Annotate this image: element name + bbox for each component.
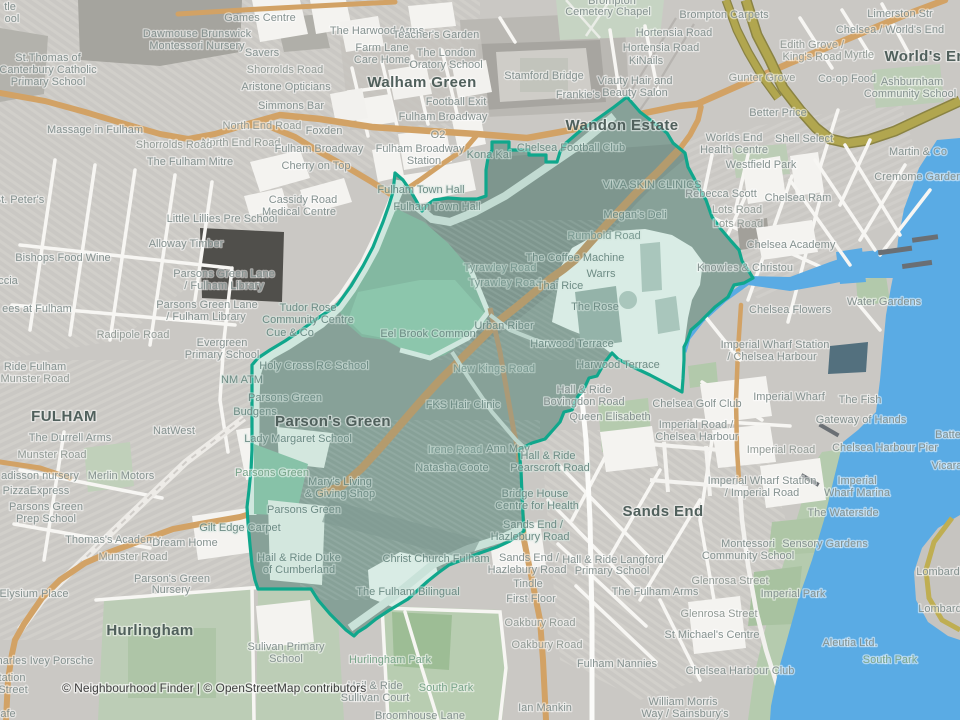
svg-text:Wharf Marina: Wharf Marina bbox=[824, 487, 891, 499]
svg-text:Bridge House: Bridge House bbox=[502, 488, 569, 500]
svg-text:Glenrosa Street: Glenrosa Street bbox=[680, 608, 757, 620]
svg-text:St.Thomas of: St.Thomas of bbox=[15, 52, 81, 64]
svg-text:Bishops Food Wine: Bishops Food Wine bbox=[15, 252, 110, 264]
svg-text:William Morris: William Morris bbox=[648, 696, 718, 708]
svg-text:Parsons Green: Parsons Green bbox=[248, 392, 322, 404]
svg-text:© Neighbourhood Finder | © Ope: © Neighbourhood Finder | © OpenStreetMap… bbox=[62, 681, 366, 695]
svg-text:Station: Station bbox=[407, 155, 441, 167]
svg-text:Cue & Co: Cue & Co bbox=[266, 327, 314, 339]
svg-text:Brompton Carpets: Brompton Carpets bbox=[679, 9, 769, 21]
svg-text:Walham Green: Walham Green bbox=[367, 74, 476, 91]
svg-text:Oratory School: Oratory School bbox=[409, 59, 482, 71]
svg-text:Worlds End: Worlds End bbox=[706, 132, 763, 144]
svg-text:Evergreen: Evergreen bbox=[197, 337, 248, 349]
svg-text:Pearscroft Road: Pearscroft Road bbox=[510, 462, 589, 474]
svg-text:Ashburnham: Ashburnham bbox=[881, 76, 943, 88]
svg-text:O2: O2 bbox=[431, 129, 446, 141]
svg-text:South Park: South Park bbox=[419, 682, 474, 694]
svg-text:Thai Rice: Thai Rice bbox=[537, 280, 583, 292]
svg-text:/ Fulham Library: / Fulham Library bbox=[166, 311, 246, 323]
svg-text:Elysium Place: Elysium Place bbox=[0, 588, 69, 600]
svg-text:Fulham Nannies: Fulham Nannies bbox=[577, 658, 658, 670]
svg-text:Edith Grove /: Edith Grove / bbox=[780, 39, 845, 51]
svg-text:Primary School: Primary School bbox=[575, 565, 650, 577]
svg-text:Hall & Ride: Hall & Ride bbox=[556, 384, 611, 396]
svg-text:Budgens: Budgens bbox=[233, 406, 277, 418]
svg-text:Harwood Terrace: Harwood Terrace bbox=[576, 359, 660, 371]
svg-text:Chelsea Football Club: Chelsea Football Club bbox=[517, 142, 625, 154]
svg-text:Irene Road: Irene Road bbox=[428, 444, 482, 456]
svg-text:Beauty Salon: Beauty Salon bbox=[602, 87, 667, 99]
svg-text:Montessori: Montessori bbox=[721, 538, 775, 550]
svg-text:First Floor: First Floor bbox=[506, 593, 556, 605]
svg-text:Chelsea Harbour Club: Chelsea Harbour Club bbox=[686, 665, 795, 677]
svg-text:ees at Fulham: ees at Fulham bbox=[2, 303, 72, 315]
svg-text:Fulham Broadway: Fulham Broadway bbox=[275, 143, 364, 155]
svg-text:Chelsea Academy: Chelsea Academy bbox=[747, 239, 836, 251]
svg-text:Chelsea Harbour: Chelsea Harbour bbox=[655, 431, 738, 443]
svg-text:South Park: South Park bbox=[863, 654, 918, 666]
svg-text:Imperial Road: Imperial Road bbox=[747, 444, 815, 456]
svg-text:Eel Brook Common: Eel Brook Common bbox=[380, 328, 475, 340]
svg-text:School: School bbox=[269, 653, 303, 665]
svg-text:Lots Road: Lots Road bbox=[712, 204, 762, 216]
svg-text:Community School: Community School bbox=[864, 88, 956, 100]
svg-text:Parsons Green: Parsons Green bbox=[235, 467, 309, 479]
svg-text:KiNails: KiNails bbox=[629, 55, 664, 67]
svg-text:Gateway of Hands: Gateway of Hands bbox=[816, 414, 907, 426]
svg-text:World's End: World's End bbox=[884, 48, 960, 65]
svg-text:Sulivan Primary: Sulivan Primary bbox=[247, 641, 325, 653]
svg-text:Ride Fulham: Ride Fulham bbox=[4, 361, 66, 373]
svg-text:Nursery: Nursery bbox=[152, 584, 191, 596]
svg-text:Alloway Timber: Alloway Timber bbox=[149, 238, 224, 250]
svg-text:Shorrolds Road: Shorrolds Road bbox=[136, 139, 212, 151]
svg-text:afe: afe bbox=[0, 708, 15, 720]
svg-text:Warrs: Warrs bbox=[587, 268, 616, 280]
svg-text:Dream Home: Dream Home bbox=[152, 537, 217, 549]
svg-text:Care Home: Care Home bbox=[354, 54, 410, 66]
svg-text:Ian Mankin: Ian Mankin bbox=[518, 702, 572, 714]
svg-text:Hail & Ride Duke: Hail & Ride Duke bbox=[257, 552, 341, 564]
svg-text:The Durrell Arms: The Durrell Arms bbox=[29, 432, 112, 444]
svg-text:Tyrawley Road: Tyrawley Road bbox=[464, 262, 537, 274]
svg-text:The Fulham Mitre: The Fulham Mitre bbox=[147, 156, 233, 168]
svg-text:Merlin Motors: Merlin Motors bbox=[88, 470, 155, 482]
svg-text:Sands End /: Sands End / bbox=[503, 519, 564, 531]
svg-text:Gunter Grove: Gunter Grove bbox=[729, 72, 796, 84]
svg-text:Parsons Green Lane: Parsons Green Lane bbox=[173, 268, 275, 280]
svg-text:Hazlebury Road: Hazlebury Road bbox=[491, 531, 570, 543]
svg-text:Parson's Green: Parson's Green bbox=[275, 413, 391, 430]
svg-text:Teacher's Garden: Teacher's Garden bbox=[393, 29, 479, 41]
svg-text:tle: tle bbox=[4, 1, 16, 13]
svg-text:Farm Lane: Farm Lane bbox=[355, 42, 408, 54]
svg-text:Thomas's Academy: Thomas's Academy bbox=[65, 534, 161, 546]
svg-text:/ Fulham Library: / Fulham Library bbox=[184, 280, 264, 292]
svg-text:North End Road: North End Road bbox=[202, 137, 281, 149]
svg-text:Fulham Town Hall: Fulham Town Hall bbox=[377, 184, 464, 196]
svg-text:Oakbury Road: Oakbury Road bbox=[505, 617, 576, 629]
svg-text:Cassidy Road: Cassidy Road bbox=[269, 194, 337, 206]
svg-text:Harwood Terrace: Harwood Terrace bbox=[530, 338, 614, 350]
svg-text:Brompton: Brompton bbox=[588, 0, 636, 7]
svg-text:Canterbury Catholic: Canterbury Catholic bbox=[0, 64, 97, 76]
svg-text:Mary's Living: Mary's Living bbox=[308, 476, 372, 488]
svg-text:The Fulham Bilingual: The Fulham Bilingual bbox=[356, 586, 459, 598]
svg-text:Community School: Community School bbox=[702, 550, 794, 562]
svg-text:Football Exit: Football Exit bbox=[426, 96, 487, 108]
svg-text:Sands End /: Sands End / bbox=[499, 552, 560, 564]
svg-text:Community Centre: Community Centre bbox=[262, 314, 354, 326]
svg-text:Westfield Park: Westfield Park bbox=[726, 159, 797, 171]
svg-text:North End Road: North End Road bbox=[223, 120, 302, 132]
svg-text:Shorrolds Road: Shorrolds Road bbox=[247, 64, 323, 76]
svg-text:Tindle: Tindle bbox=[513, 578, 543, 590]
svg-text:Centre for Health: Centre for Health bbox=[495, 500, 579, 512]
svg-text:Lady Margaret School: Lady Margaret School bbox=[244, 433, 352, 445]
svg-text:Vicarag: Vicarag bbox=[931, 460, 960, 472]
svg-text:Massage in Fulham: Massage in Fulham bbox=[47, 124, 143, 136]
svg-text:Wandon Estate: Wandon Estate bbox=[566, 117, 679, 134]
svg-text:Way / Sainsbury's: Way / Sainsbury's bbox=[641, 708, 729, 720]
svg-text:of Cumberland: of Cumberland bbox=[263, 564, 335, 576]
svg-text:Co-op Food: Co-op Food bbox=[818, 73, 876, 85]
svg-text:Imperial: Imperial bbox=[837, 475, 876, 487]
svg-text:Imperial Wharf Station: Imperial Wharf Station bbox=[721, 339, 830, 351]
svg-text:Imperial Wharf Station: Imperial Wharf Station bbox=[708, 475, 817, 487]
svg-text:Lombard: Lombard bbox=[918, 603, 960, 615]
svg-text:Imperial Park: Imperial Park bbox=[761, 588, 826, 600]
svg-text:ool: ool bbox=[5, 13, 20, 25]
svg-text:Myrtle: Myrtle bbox=[844, 49, 874, 61]
svg-text:Rumbold Road: Rumbold Road bbox=[567, 230, 640, 242]
svg-text:/ Imperial Road: / Imperial Road bbox=[725, 487, 800, 499]
svg-text:VIVA SKIN CLINICS: VIVA SKIN CLINICS bbox=[603, 179, 702, 191]
svg-text:Hazlebury Road: Hazlebury Road bbox=[488, 564, 567, 576]
svg-text:Primary School: Primary School bbox=[185, 349, 260, 361]
svg-text:Broomhouse Lane: Broomhouse Lane bbox=[375, 710, 465, 720]
svg-text:Games Centre: Games Centre bbox=[224, 12, 296, 24]
svg-text:Fulham Town Hall: Fulham Town Hall bbox=[393, 201, 480, 213]
svg-text:Aleutia Ltd.: Aleutia Ltd. bbox=[822, 637, 877, 649]
svg-text:Radipole Road: Radipole Road bbox=[97, 329, 170, 341]
svg-text:Munster Road: Munster Road bbox=[98, 551, 167, 563]
svg-text:Imperial Wharf: Imperial Wharf bbox=[753, 391, 825, 403]
svg-text:Chelsea Flowers: Chelsea Flowers bbox=[749, 304, 831, 316]
svg-text:Fulham Broadway: Fulham Broadway bbox=[376, 143, 465, 155]
svg-text:King's Road: King's Road bbox=[783, 51, 842, 63]
svg-text:Bovingdon Road: Bovingdon Road bbox=[543, 396, 624, 408]
svg-text:& Giving Shop: & Giving Shop bbox=[305, 488, 375, 500]
svg-text:Chelsea Harbour Pier: Chelsea Harbour Pier bbox=[832, 442, 938, 454]
svg-text:Hortensia Road: Hortensia Road bbox=[636, 27, 712, 39]
svg-text:Limerston Str: Limerston Str bbox=[867, 8, 933, 20]
svg-text:Charles Ivey Porsche: Charles Ivey Porsche bbox=[0, 655, 93, 667]
svg-text:Megan's Deli: Megan's Deli bbox=[603, 209, 666, 221]
svg-text:Shell Select: Shell Select bbox=[775, 133, 833, 145]
svg-text:Kona Kai: Kona Kai bbox=[467, 149, 512, 161]
svg-text:The Fish: The Fish bbox=[839, 394, 882, 406]
svg-text:Frankie's: Frankie's bbox=[556, 89, 601, 101]
svg-text:Water Gardens: Water Gardens bbox=[847, 296, 922, 308]
svg-text:New Kings Road: New Kings Road bbox=[453, 363, 535, 375]
svg-text:Lots Road: Lots Road bbox=[713, 218, 763, 230]
svg-text:Hurlingham: Hurlingham bbox=[106, 622, 193, 639]
svg-text:Foxden: Foxden bbox=[306, 125, 343, 137]
svg-text:NatWest: NatWest bbox=[153, 425, 195, 437]
svg-text:Fulham Broadway: Fulham Broadway bbox=[399, 111, 488, 123]
svg-text:Aristone Opticians: Aristone Opticians bbox=[241, 81, 331, 93]
svg-text:Hall & Ride: Hall & Ride bbox=[520, 450, 575, 462]
svg-text:Batte: Batte bbox=[935, 429, 960, 441]
svg-text:Medical Centre: Medical Centre bbox=[262, 206, 336, 218]
svg-text:Glenrosa Street: Glenrosa Street bbox=[691, 575, 768, 587]
svg-text:FULHAM: FULHAM bbox=[31, 408, 97, 425]
svg-text:Imperial Road /: Imperial Road / bbox=[659, 419, 735, 431]
svg-text:Health Centre: Health Centre bbox=[700, 144, 768, 156]
svg-text:Urban Riber: Urban Riber bbox=[474, 320, 534, 332]
svg-text:Cremome Gardens: Cremome Gardens bbox=[874, 171, 960, 183]
svg-text:tation: tation bbox=[0, 672, 25, 684]
svg-text:Holy Cross RC School: Holy Cross RC School bbox=[259, 360, 368, 372]
svg-text:PizzaExpress: PizzaExpress bbox=[3, 485, 70, 497]
svg-text:Chelsea Ram: Chelsea Ram bbox=[765, 192, 832, 204]
svg-text:Gilt Edge Carpet: Gilt Edge Carpet bbox=[199, 522, 280, 534]
svg-text:The London: The London bbox=[417, 47, 476, 59]
svg-text:Parsons Green: Parsons Green bbox=[267, 504, 341, 516]
svg-text:Sands End: Sands End bbox=[622, 503, 703, 520]
svg-text:Knowles & Christou: Knowles & Christou bbox=[697, 262, 793, 274]
svg-text:Lombard: Lombard bbox=[916, 566, 959, 578]
svg-text:Dawmouse Brunswick: Dawmouse Brunswick bbox=[143, 28, 252, 40]
svg-text:The Coffee Machine: The Coffee Machine bbox=[526, 252, 625, 264]
svg-text:Oakbury Road: Oakbury Road bbox=[512, 639, 583, 651]
svg-text:The Fulham Arms: The Fulham Arms bbox=[612, 586, 699, 598]
svg-text:Better Price: Better Price bbox=[749, 107, 806, 119]
svg-text:Prep School: Prep School bbox=[16, 513, 76, 525]
svg-text:Cherry on Top: Cherry on Top bbox=[282, 160, 351, 172]
svg-text:Tyrawley Road: Tyrawley Road bbox=[469, 277, 542, 289]
svg-text:Simmons Bar: Simmons Bar bbox=[258, 100, 324, 112]
svg-text:Christ Church Fulham: Christ Church Fulham bbox=[383, 553, 490, 565]
svg-text:Sensory Gardens: Sensory Gardens bbox=[782, 538, 868, 550]
svg-text:Hortensia Road: Hortensia Road bbox=[623, 42, 699, 54]
svg-text:The Waterside: The Waterside bbox=[807, 507, 878, 519]
svg-text:Tudor Rose: Tudor Rose bbox=[279, 302, 336, 314]
svg-text:St Michael's Centre: St Michael's Centre bbox=[664, 629, 759, 641]
svg-text:NM ATM: NM ATM bbox=[221, 374, 263, 386]
svg-text:Savers: Savers bbox=[245, 47, 280, 59]
svg-text:adisson nursery: adisson nursery bbox=[1, 470, 79, 482]
svg-text:Munster Road: Munster Road bbox=[0, 373, 69, 385]
svg-text:FKS Hair Clinic: FKS Hair Clinic bbox=[426, 399, 501, 411]
svg-text:Cemetery Chapel: Cemetery Chapel bbox=[565, 6, 651, 18]
svg-text:Hurlingham Park: Hurlingham Park bbox=[349, 654, 431, 666]
svg-text:Munster Road: Munster Road bbox=[17, 449, 86, 461]
svg-text:Montessori Nursery: Montessori Nursery bbox=[149, 40, 245, 52]
svg-text:Primary School: Primary School bbox=[11, 76, 86, 88]
svg-text:Viauty Hair and: Viauty Hair and bbox=[597, 75, 672, 87]
svg-text:Parsons Green Lane: Parsons Green Lane bbox=[156, 299, 258, 311]
svg-text:Natasha Coote: Natasha Coote bbox=[415, 462, 488, 474]
svg-text:Little Lillies Pre School: Little Lillies Pre School bbox=[167, 213, 278, 225]
svg-text:/ Chelsea Harbour: / Chelsea Harbour bbox=[727, 351, 817, 363]
svg-text:Parsons Green: Parsons Green bbox=[9, 501, 83, 513]
svg-text:St. Peter's: St. Peter's bbox=[0, 194, 45, 206]
svg-text:Stamford Bridge: Stamford Bridge bbox=[504, 70, 583, 82]
svg-text:Queen Elisabeth: Queen Elisabeth bbox=[569, 411, 650, 423]
svg-text:ccia: ccia bbox=[0, 275, 19, 287]
svg-text:Chelsea Golf Club: Chelsea Golf Club bbox=[652, 398, 741, 410]
svg-text:Martin & Co: Martin & Co bbox=[889, 146, 947, 158]
svg-text:The Rose: The Rose bbox=[571, 301, 619, 313]
svg-text:Chelsea / World's End: Chelsea / World's End bbox=[836, 24, 944, 36]
svg-text:Street: Street bbox=[0, 684, 28, 696]
